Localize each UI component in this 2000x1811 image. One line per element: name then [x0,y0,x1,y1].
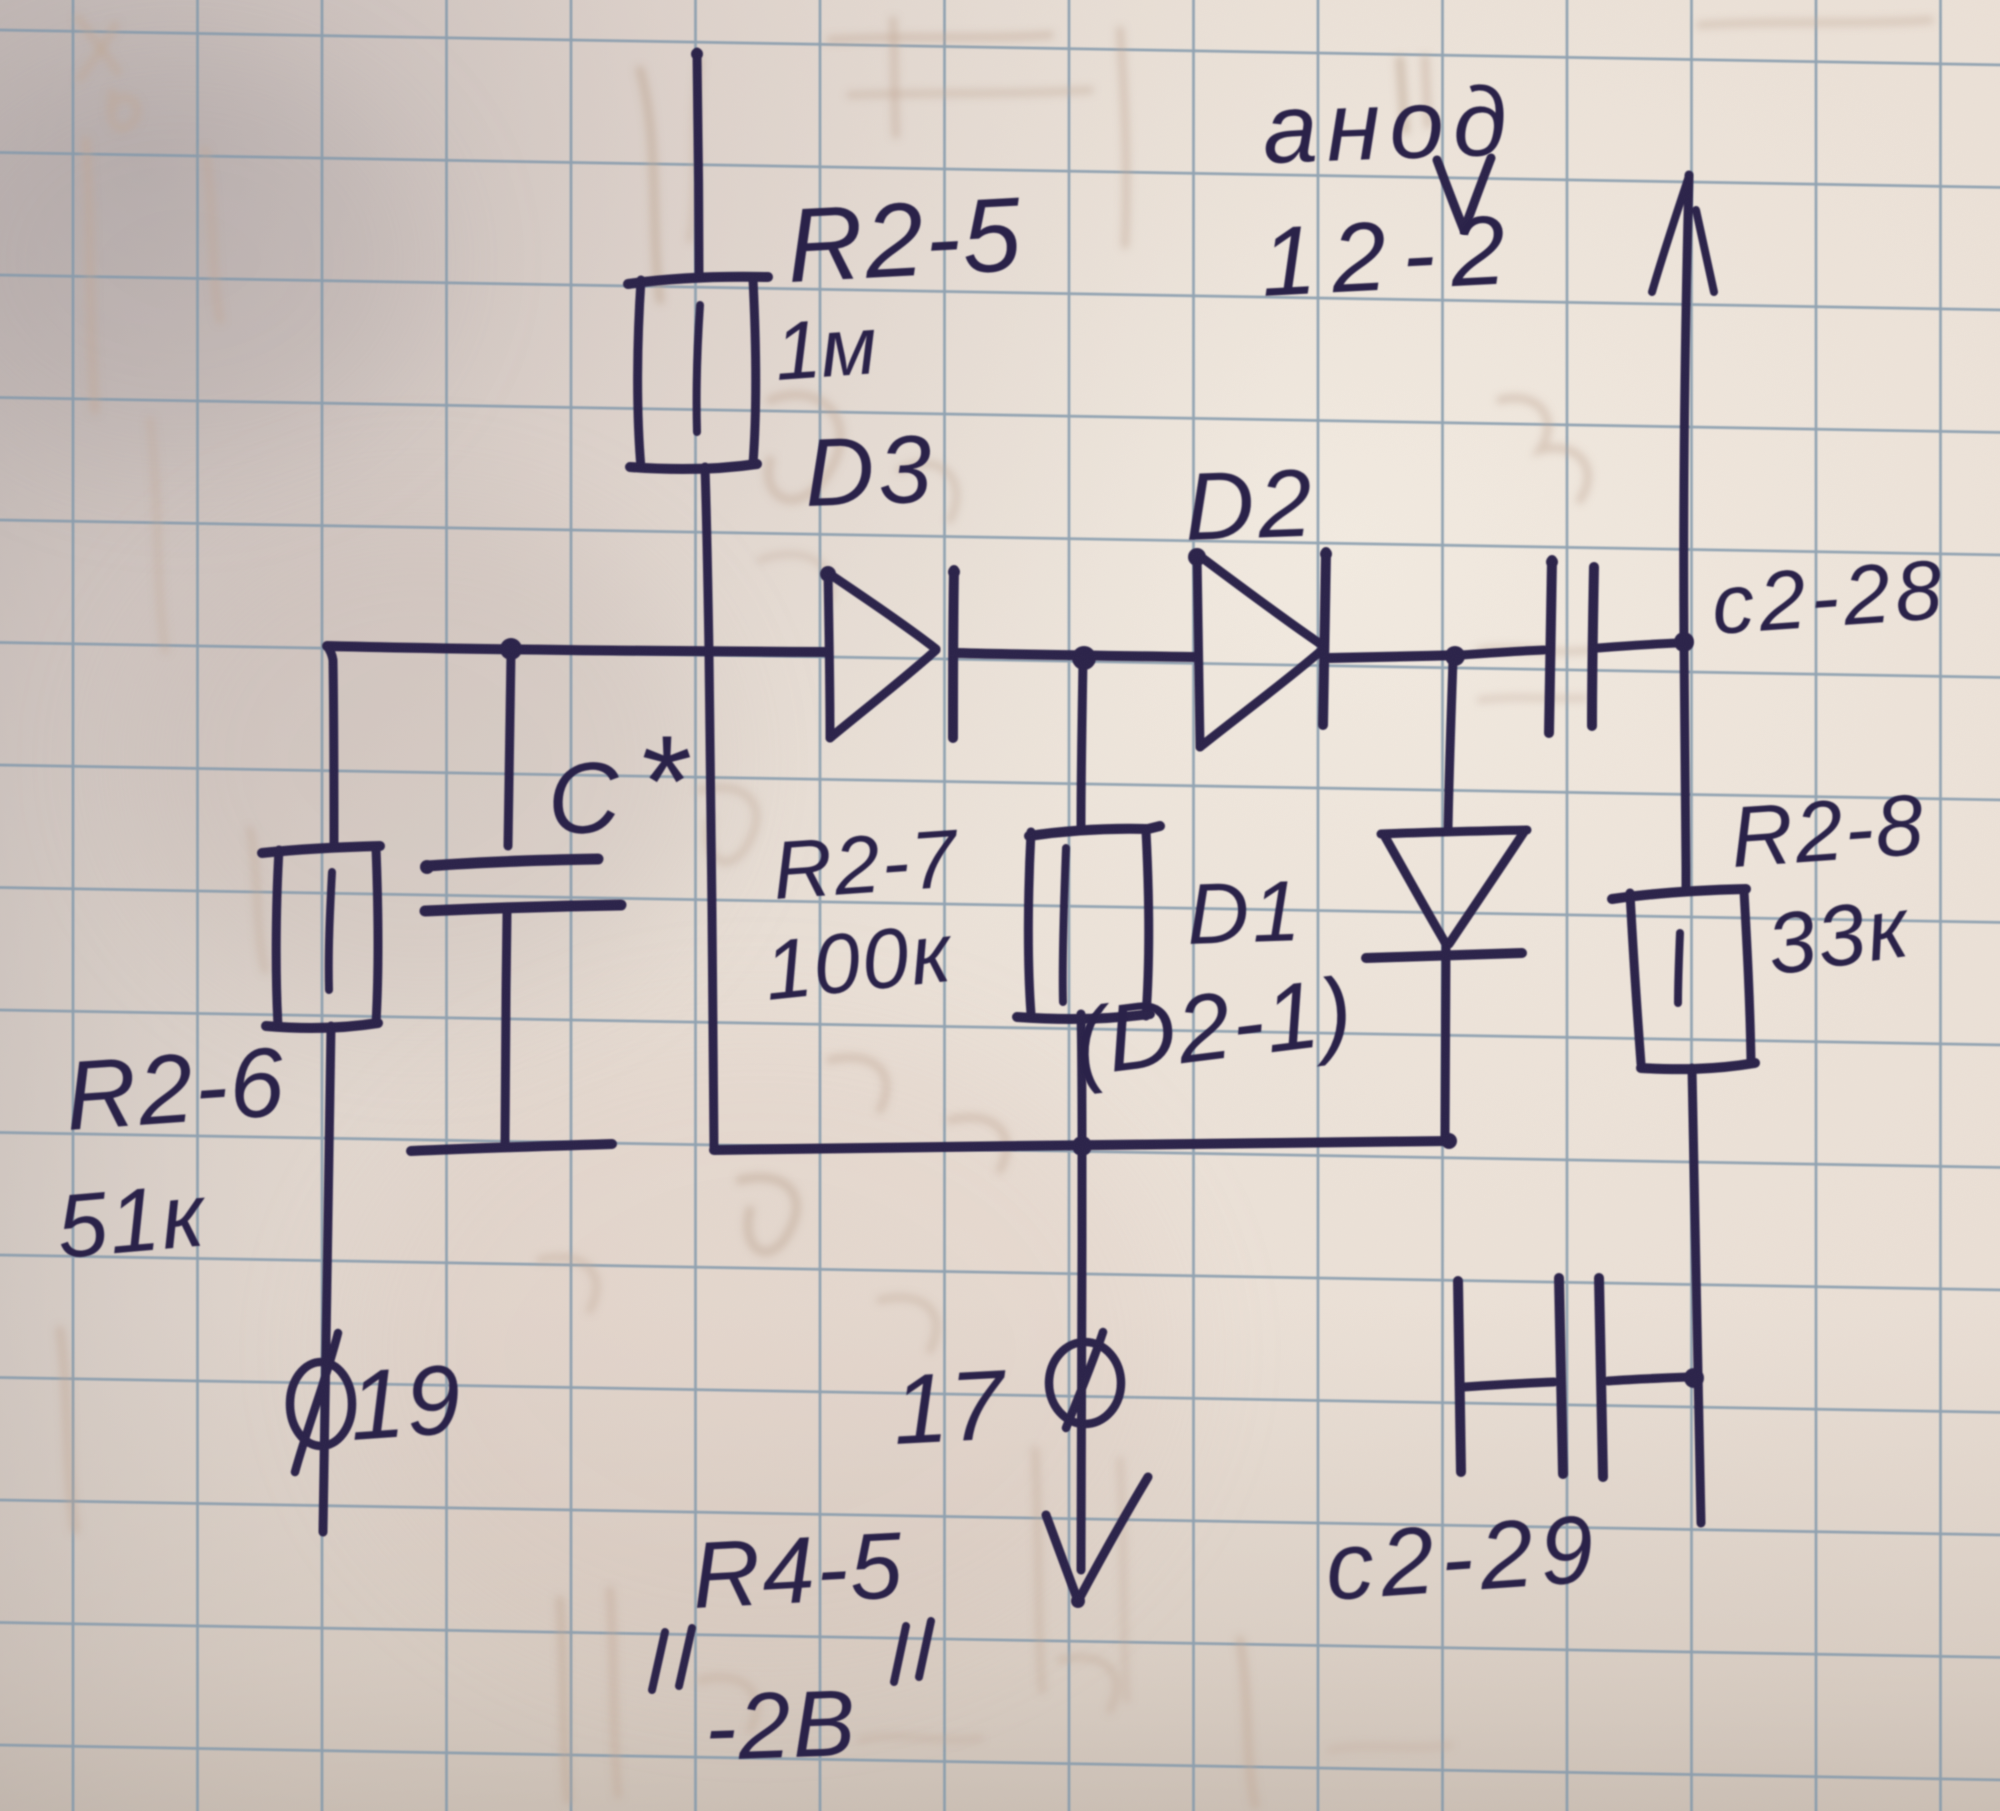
svg-text:с2-29: с2-29 [1322,1495,1604,1621]
svg-text:R2-7: R2-7 [770,813,963,917]
svg-text:1м: 1м [772,300,880,398]
svg-text:19: 19 [346,1343,466,1461]
svg-text:R2-6: R2-6 [62,1026,290,1151]
svg-text:33к: 33к [1761,879,1917,994]
svg-text:12-2: 12-2 [1258,194,1524,317]
svg-text:анод: анод [1261,65,1518,184]
svg-text:С: С [544,740,625,857]
svg-text:-2В: -2В [703,1670,859,1780]
svg-text:D2: D2 [1183,449,1317,560]
svg-text:100к: 100к [760,905,958,1018]
svg-text:17: 17 [890,1349,1010,1465]
svg-text:51к: 51к [53,1165,211,1278]
svg-text:с2-28: с2-28 [1709,542,1950,652]
svg-text:R2-8: R2-8 [1728,777,1929,886]
svg-text:D3: D3 [803,415,937,526]
svg-text:D1: D1 [1185,863,1304,963]
svg-text:*: * [636,708,691,854]
svg-text:R4-5: R4-5 [690,1512,907,1628]
svg-text:R2-5: R2-5 [784,176,1025,305]
